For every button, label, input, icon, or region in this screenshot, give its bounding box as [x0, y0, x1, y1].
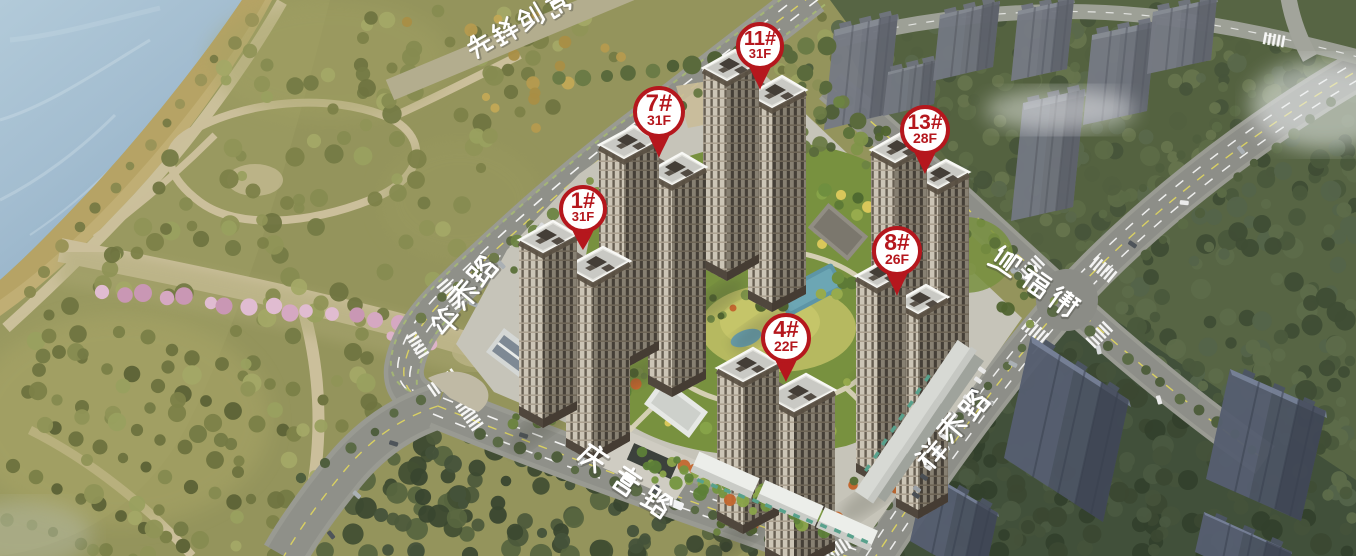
- svg-text:22F: 22F: [774, 338, 799, 354]
- svg-text:26F: 26F: [885, 251, 910, 267]
- svg-text:31F: 31F: [572, 209, 594, 224]
- svg-text:28F: 28F: [913, 130, 938, 146]
- svg-text:31F: 31F: [749, 46, 771, 61]
- svg-text:31F: 31F: [647, 112, 672, 128]
